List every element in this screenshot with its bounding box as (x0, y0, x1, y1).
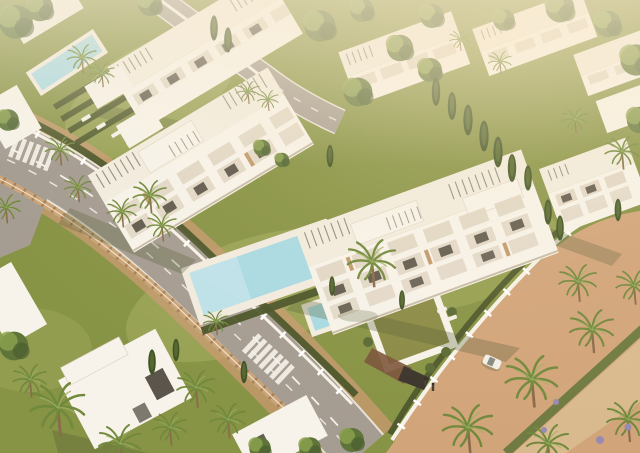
sun-glow-overlay (0, 0, 640, 453)
aerial-render-image (0, 0, 640, 453)
render-canvas (0, 0, 640, 453)
